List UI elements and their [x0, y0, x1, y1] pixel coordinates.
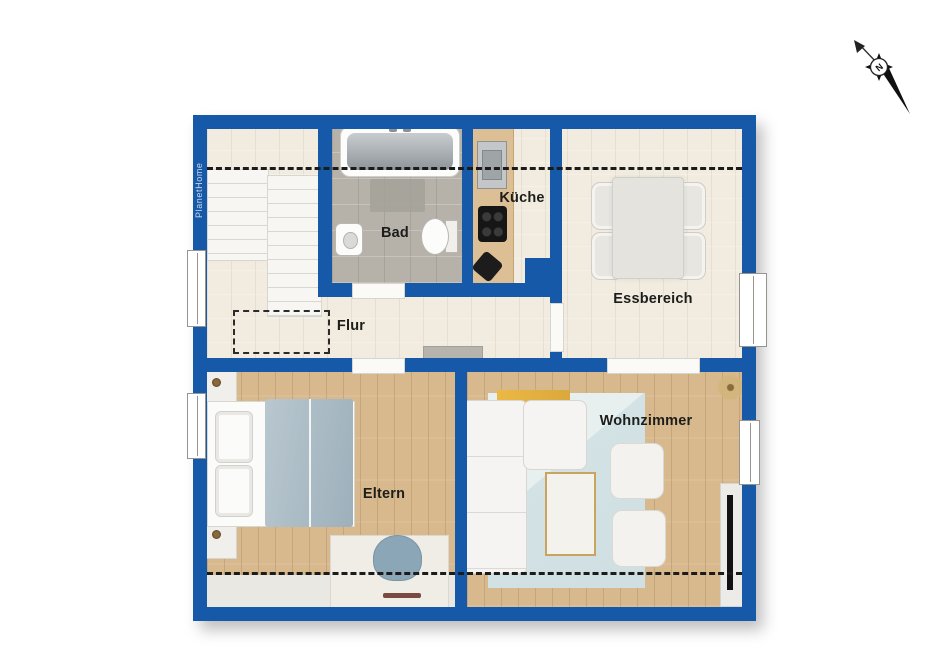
hallway-dashed-opening	[233, 310, 330, 354]
staircase-left-run	[207, 169, 269, 261]
wall-outer-top	[193, 115, 756, 129]
planethome-watermark: PlanetHome	[194, 125, 207, 255]
roof-slope-line-top	[207, 167, 742, 170]
desk-tray	[383, 593, 421, 598]
room-label-flur: Flur	[337, 318, 365, 334]
plant-livingroom	[464, 579, 491, 606]
washbasin	[335, 223, 363, 256]
floorplan-canvas: N	[0, 0, 950, 672]
room-label-bad: Bad	[381, 225, 409, 241]
ceiling-light	[717, 374, 744, 401]
bed-pillow	[215, 411, 253, 463]
window-dining	[739, 273, 767, 347]
wall-chimney-block	[525, 258, 550, 297]
window-livingroom	[739, 420, 760, 485]
room-label-wohnzimmer: Wohnzimmer	[600, 413, 693, 429]
bath-mat	[370, 179, 425, 212]
bed-blanket	[265, 399, 353, 527]
stove-cooktop	[478, 206, 507, 242]
room-label-kueche: Küche	[499, 190, 544, 206]
door-bathroom	[352, 283, 405, 299]
plant-dining-table	[634, 208, 670, 244]
wall-outer-bottom	[193, 607, 756, 621]
tv-screen	[727, 495, 733, 590]
window-bedroom	[187, 393, 206, 459]
door-bedroom	[352, 358, 405, 374]
wall-bedroom-living	[455, 358, 467, 621]
opening-livingroom	[607, 358, 700, 374]
wall-stairs-bath	[318, 129, 332, 297]
sofa-long-section	[463, 400, 527, 574]
sofa-chaise-section	[523, 400, 587, 470]
door-dining	[550, 303, 564, 352]
room-label-eltern: Eltern	[363, 486, 405, 502]
ottoman	[610, 443, 664, 499]
kitchen-sink	[477, 141, 507, 189]
bed-pillow	[215, 465, 253, 517]
plant-bedroom	[425, 369, 452, 396]
staircase-right-run	[267, 175, 322, 317]
coffee-table	[545, 472, 596, 556]
floorplan: Bad Küche Essbereich Flur Eltern Wohnzim…	[193, 115, 756, 621]
roof-slope-line-bottom	[207, 572, 742, 575]
plant-hallway	[204, 329, 232, 357]
wall-bath-right	[462, 129, 473, 297]
compass-north-icon: N	[848, 40, 924, 124]
toilet-bowl	[421, 218, 449, 255]
ottoman	[612, 510, 666, 567]
room-label-essbereich: Essbereich	[613, 291, 692, 307]
window-stairs	[187, 250, 206, 327]
